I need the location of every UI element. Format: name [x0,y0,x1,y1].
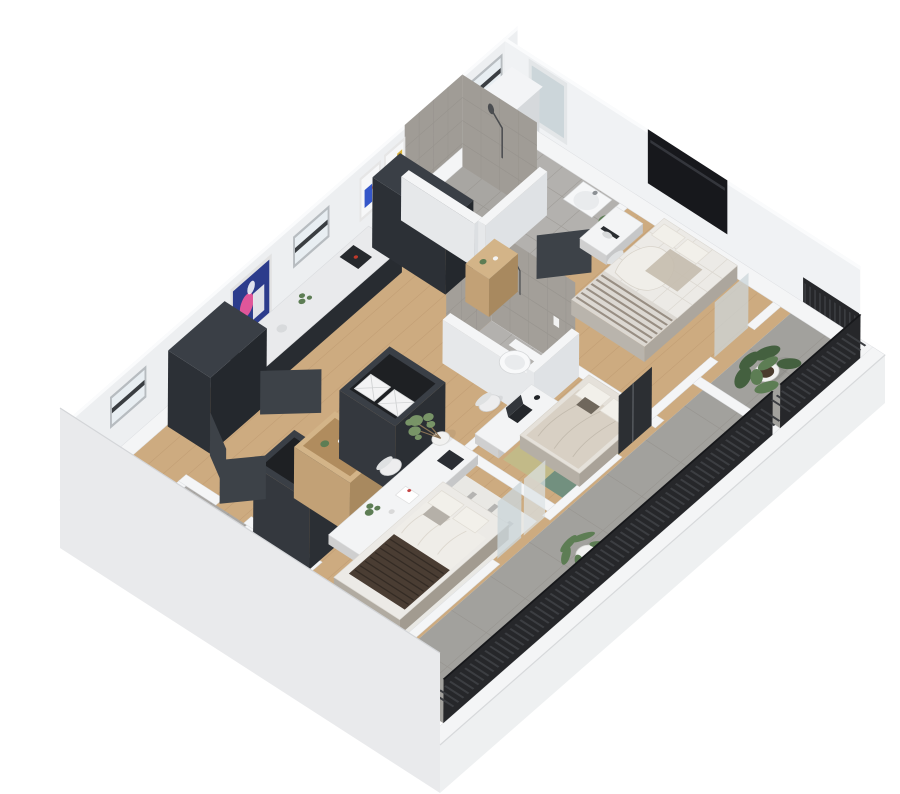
isometric-apartment [0,0,900,794]
floor-plan-render [0,0,900,794]
